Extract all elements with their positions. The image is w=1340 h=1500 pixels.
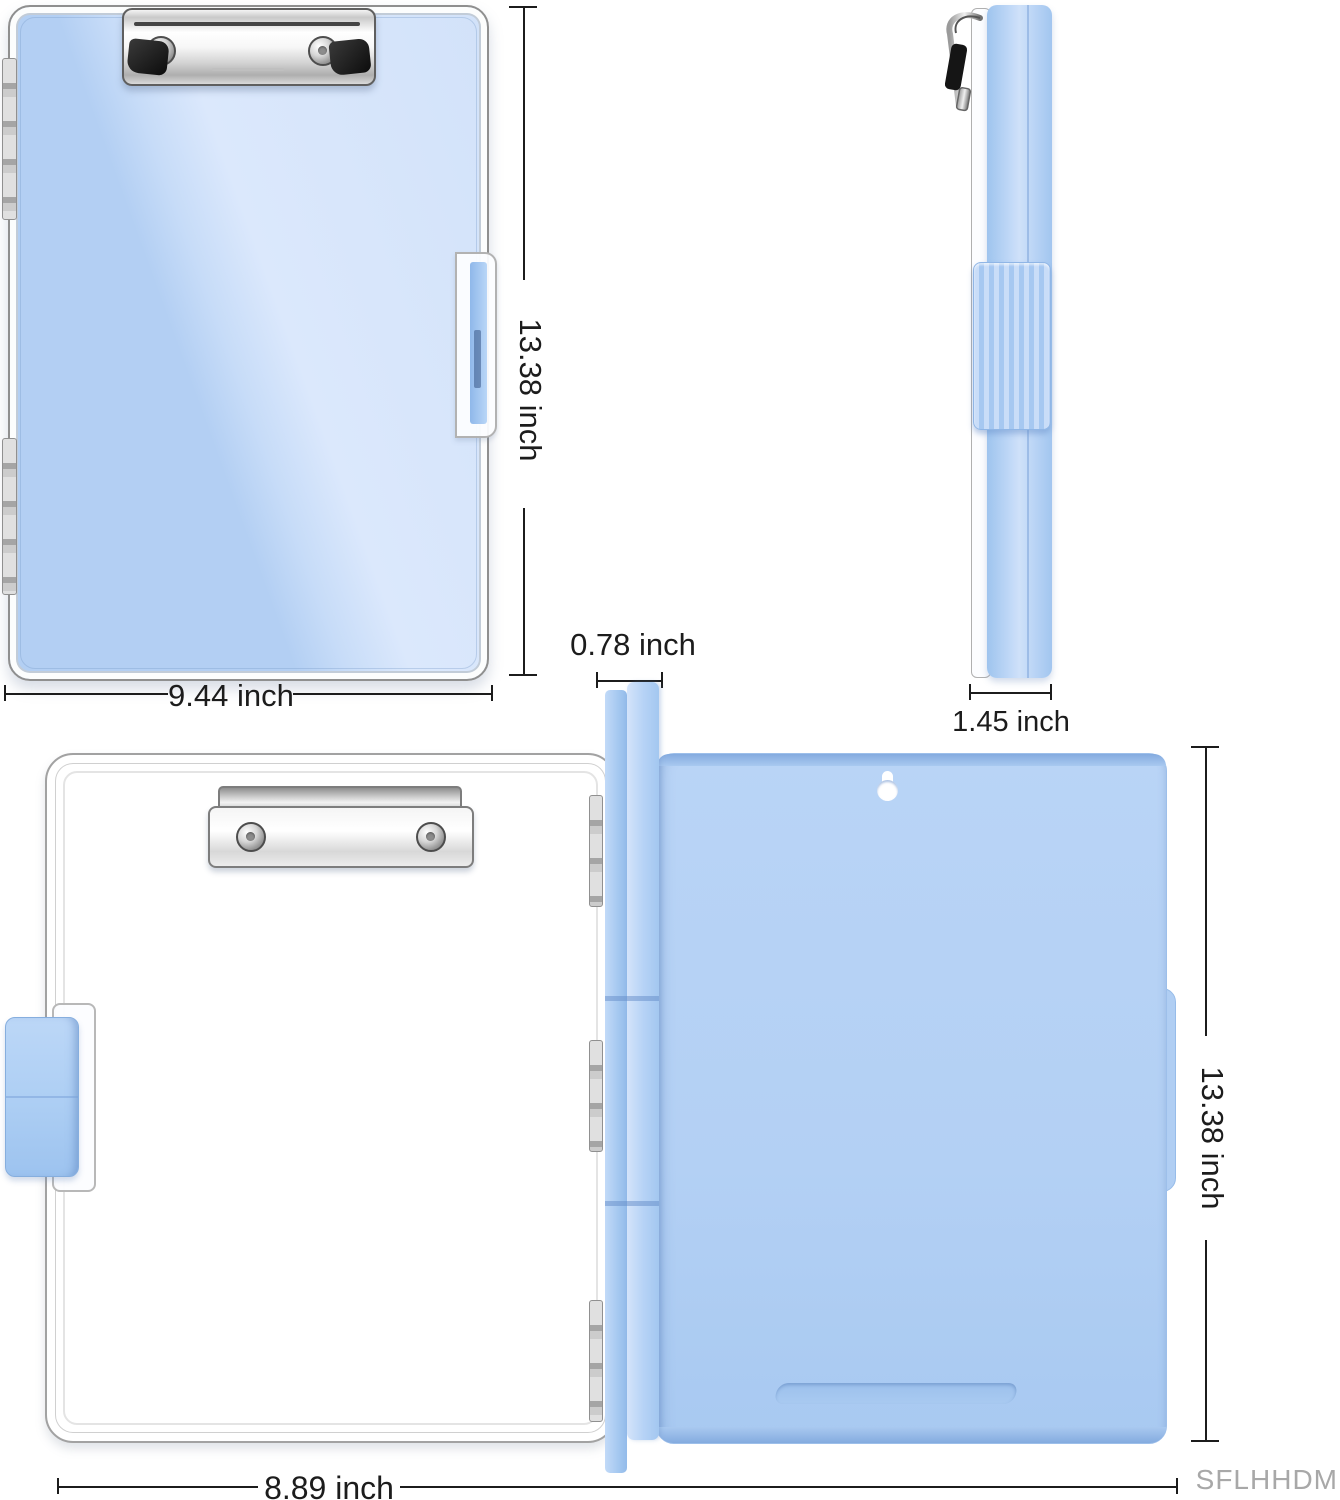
dim-line-open-height-upper — [1205, 748, 1207, 1036]
latch-tab-seam — [6, 1096, 78, 1098]
hinge-strip-top — [2, 58, 17, 220]
dim-label-front-height: 13.38 inch — [510, 310, 550, 470]
back-panel — [656, 753, 1167, 1444]
dim-tick — [1050, 684, 1052, 700]
dim-line-front-height-upper — [523, 8, 525, 280]
dim-tick — [661, 672, 663, 688]
dim-label-spine-depth: 0.78 inch — [563, 625, 703, 665]
dim-line-front-width-left — [4, 693, 168, 695]
metal-clip-front — [122, 8, 376, 86]
clip-rivet-right — [416, 822, 446, 852]
open-hinge-middle — [589, 1040, 603, 1152]
dim-line-front-height-lower — [523, 508, 525, 676]
spine-hinge-break-lower — [605, 1201, 659, 1206]
latch-slot — [474, 330, 481, 388]
metal-clip-open-plate — [208, 806, 474, 868]
dim-tick — [491, 685, 493, 701]
hinge-strip-bottom — [2, 438, 17, 595]
watermark-text: SFLHHDM — [1180, 1464, 1338, 1496]
side-latch-block — [973, 262, 1051, 430]
product-dimension-diagram: 13.38 inch 9.44 inch 1.45 inch — [0, 0, 1340, 1500]
clip-grip-right — [328, 38, 371, 76]
dim-tick — [509, 674, 537, 676]
open-hinge-bottom — [589, 1300, 603, 1422]
dim-tick — [1191, 1440, 1219, 1442]
front-board — [8, 5, 489, 681]
dim-line-front-width-right — [293, 693, 493, 695]
spine-hinge-break-upper — [605, 996, 659, 1001]
back-panel-top-edge — [657, 754, 1166, 766]
clip-fold-line — [134, 22, 360, 26]
latch-tab-blue-front — [470, 262, 487, 424]
spine-strip-left — [605, 690, 627, 1473]
metal-clip-side — [938, 10, 992, 122]
dim-line-open-height-lower — [1205, 1240, 1207, 1442]
back-panel-bottom-edge — [657, 1427, 1166, 1443]
dim-line-open-width-left — [57, 1486, 258, 1488]
hang-hole — [877, 780, 898, 801]
dim-label-open-width: 8.89 inch — [258, 1468, 400, 1500]
spine-strip-right — [627, 682, 659, 1440]
label-slot — [773, 1383, 1018, 1404]
dim-line-open-width-right — [400, 1486, 1178, 1488]
dim-label-open-height: 13.38 inch — [1192, 1058, 1232, 1218]
latch-tab-blue-open — [5, 1017, 79, 1177]
open-white-board-inner-edge — [63, 771, 598, 1425]
open-hinge-top — [589, 795, 603, 907]
dim-tick — [1176, 1478, 1178, 1494]
front-board-inner-edge — [20, 17, 477, 669]
dim-label-front-width: 9.44 inch — [168, 676, 293, 716]
dim-line-side-depth — [969, 692, 1052, 694]
clip-grip-left — [126, 38, 169, 76]
clip-rivet-left — [236, 822, 266, 852]
dim-label-side-depth: 1.45 inch — [941, 702, 1081, 742]
clip-notch-line — [212, 68, 284, 71]
